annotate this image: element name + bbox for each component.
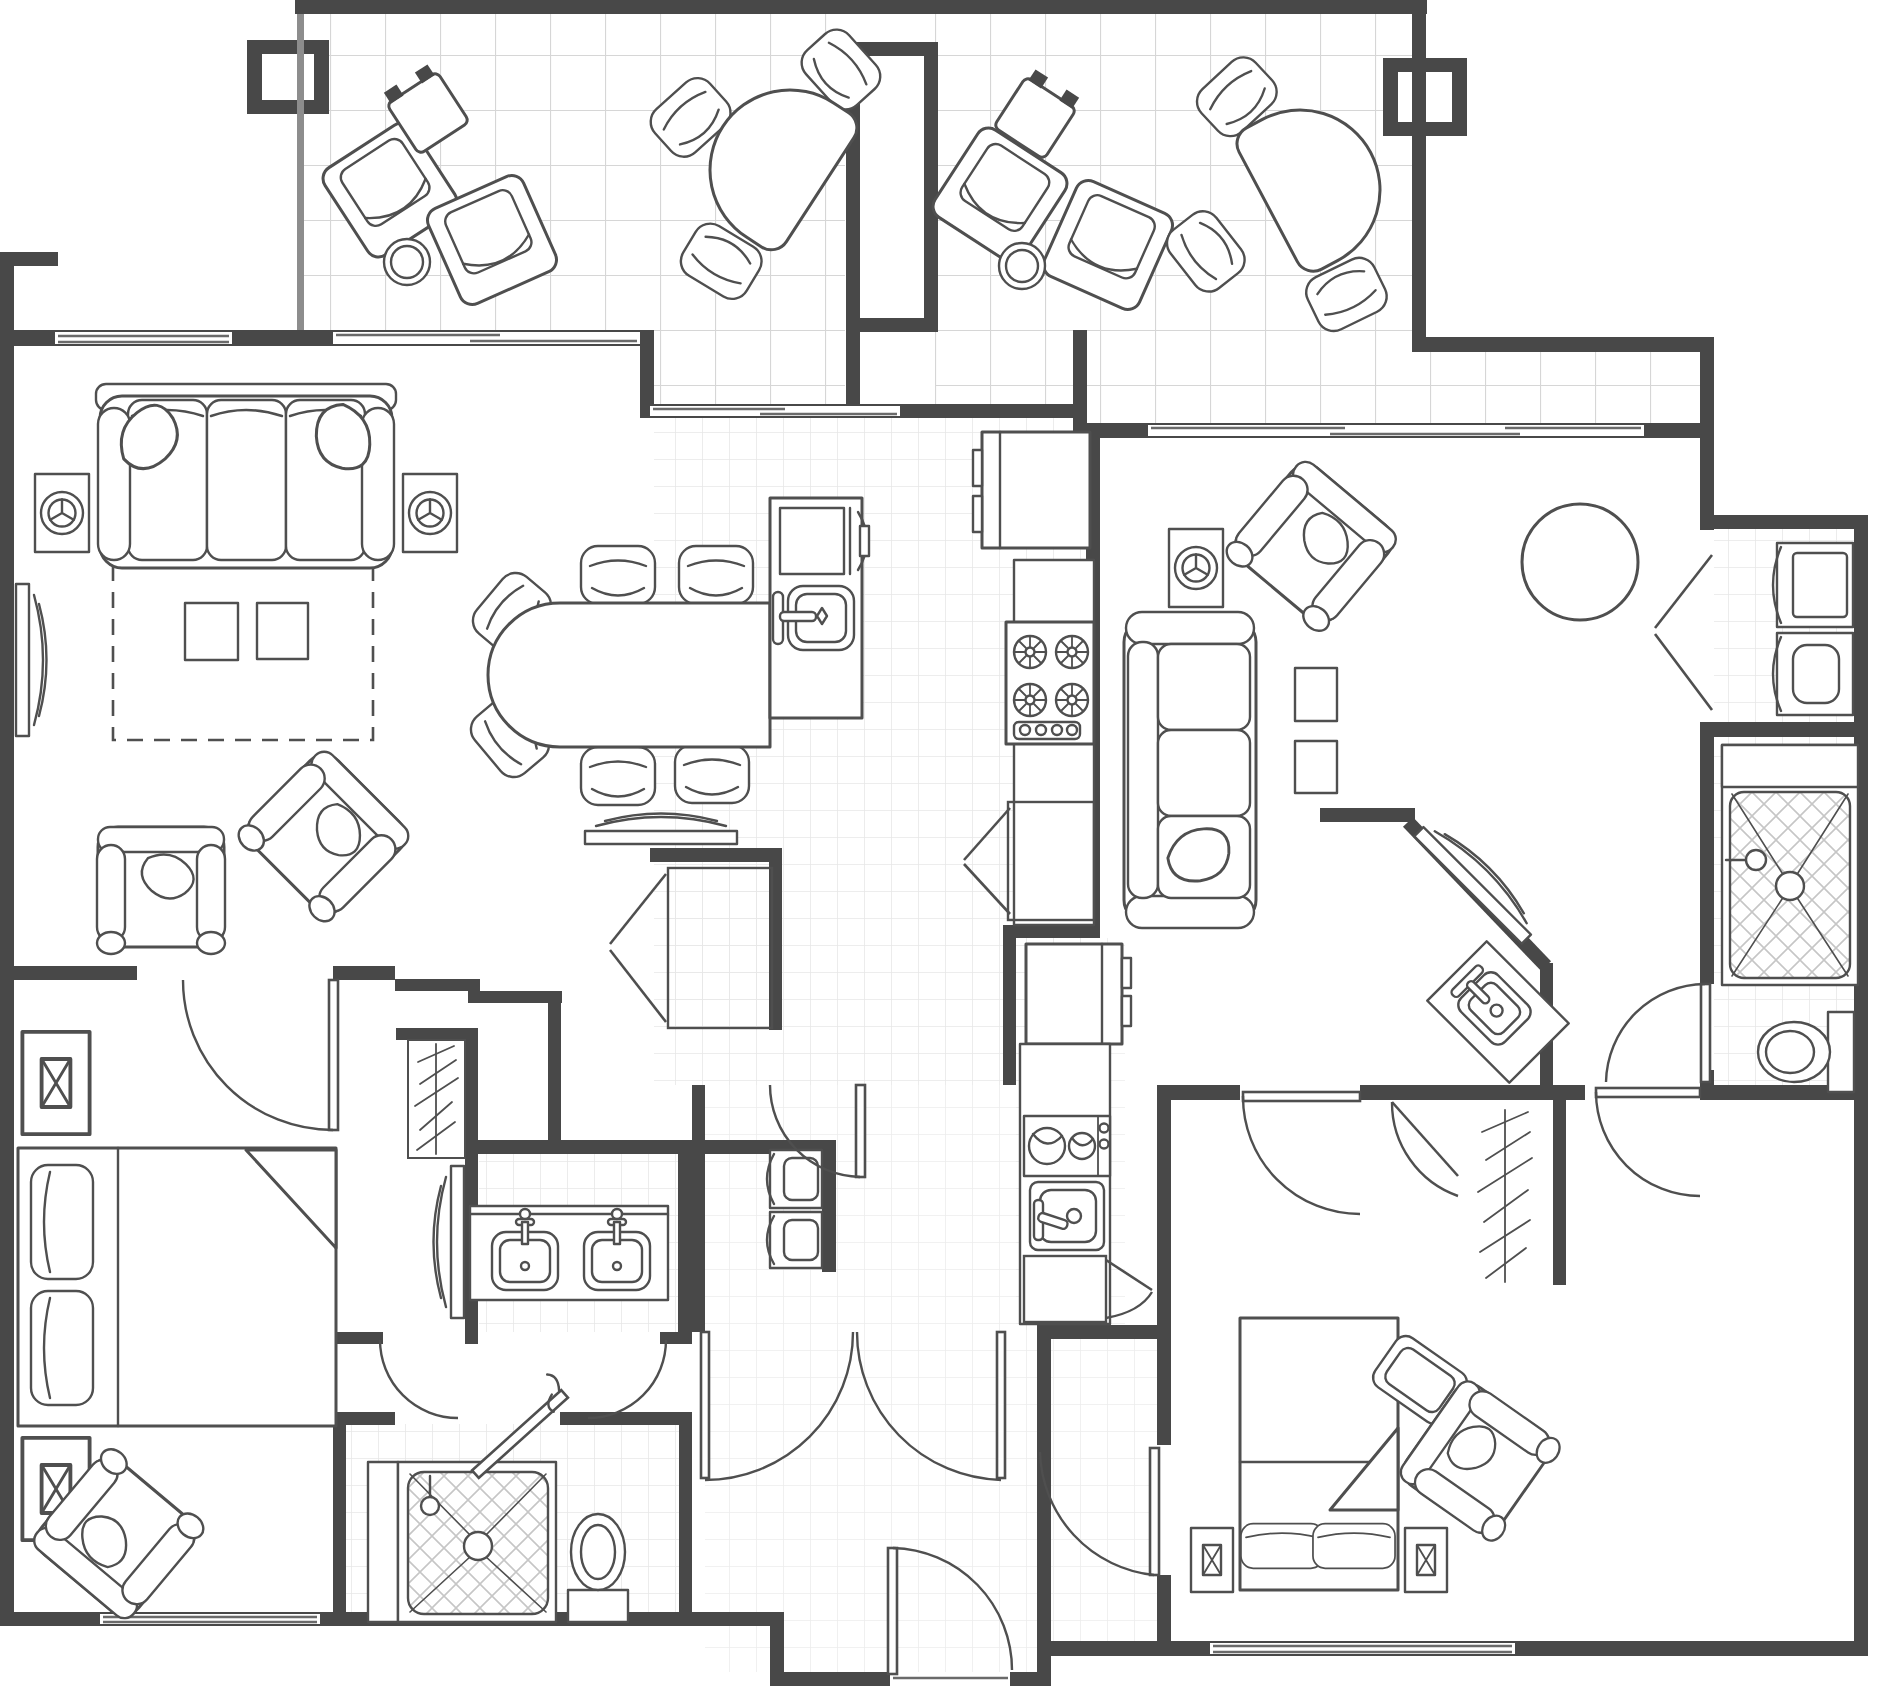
bedroom2-door-leaf	[1243, 1092, 1360, 1101]
bedroom-2	[1191, 1102, 1564, 1592]
double-door-leaf	[997, 1332, 1005, 1478]
nightstand	[1191, 1528, 1233, 1592]
lockoff-corridor-floor	[1051, 1339, 1157, 1641]
speaker-end-table	[1169, 529, 1223, 607]
bed-king	[18, 1148, 336, 1426]
coffee-table	[185, 603, 238, 660]
diagonal-tv-console	[1414, 815, 1543, 944]
floor-plan-drawing	[0, 0, 1882, 1686]
cooktop-2-burner	[1024, 1116, 1110, 1176]
nightstand	[22, 1032, 89, 1134]
closet-hanging	[408, 1040, 465, 1158]
speaker-end-table	[35, 474, 89, 552]
laundry-bifold-door	[1655, 634, 1712, 710]
dining-area	[464, 546, 770, 844]
dining-chair	[679, 546, 753, 604]
cooktop-4-burner	[1006, 622, 1094, 744]
nightstand	[1405, 1528, 1447, 1592]
bath2-door-leaf	[1701, 984, 1710, 1082]
closet-2-hanging	[1392, 1102, 1532, 1282]
refrigerator	[973, 432, 1090, 548]
dryer	[1773, 633, 1853, 715]
double-door-leaf	[701, 1332, 709, 1478]
entry-door-leaf	[888, 1548, 897, 1674]
unit-b-kitchenette	[1020, 944, 1152, 1324]
dining-table	[488, 603, 770, 747]
area-rug	[113, 555, 373, 740]
sink-b	[1030, 1182, 1104, 1250]
side-table	[1295, 668, 1337, 721]
angled-armchair	[234, 746, 414, 926]
walkin-closet-floor	[668, 868, 775, 1028]
hall-vestibule-floor	[705, 1085, 1037, 1672]
floor-plan-page	[0, 0, 1882, 1686]
sofa-b	[1124, 612, 1256, 928]
kitchen-island	[770, 498, 869, 718]
closet-door-leaf	[1392, 1102, 1458, 1176]
tv-west-wall	[16, 584, 47, 736]
dining-chair	[675, 745, 749, 803]
shower-b	[1722, 745, 1858, 985]
tv-cabinet	[434, 1166, 465, 1318]
living-room	[16, 384, 457, 954]
toilet-1	[568, 1514, 628, 1622]
speaker-end-table	[403, 474, 457, 552]
lockoff-door-leaf	[1150, 1448, 1159, 1575]
hall-door-leaf	[856, 1085, 865, 1177]
dining-chair	[581, 546, 655, 604]
laundry-bifold-door	[1655, 555, 1712, 628]
sofa	[96, 384, 396, 568]
round-dining-table	[1522, 504, 1638, 620]
double-vanity	[470, 1206, 668, 1300]
dining-chair	[581, 747, 655, 805]
stacked-washer-dryer	[767, 1150, 822, 1268]
armchair	[97, 827, 225, 954]
unit-b-living	[1124, 456, 1638, 943]
side-table	[1295, 741, 1337, 793]
walk-in-shower	[368, 1372, 571, 1622]
coffee-table	[257, 603, 308, 659]
bed-queen	[1240, 1318, 1398, 1590]
washer	[1773, 543, 1853, 627]
bath2-hall-door-leaf	[1596, 1088, 1700, 1097]
refrigerator-b	[1026, 944, 1131, 1044]
armchair	[1222, 456, 1402, 636]
